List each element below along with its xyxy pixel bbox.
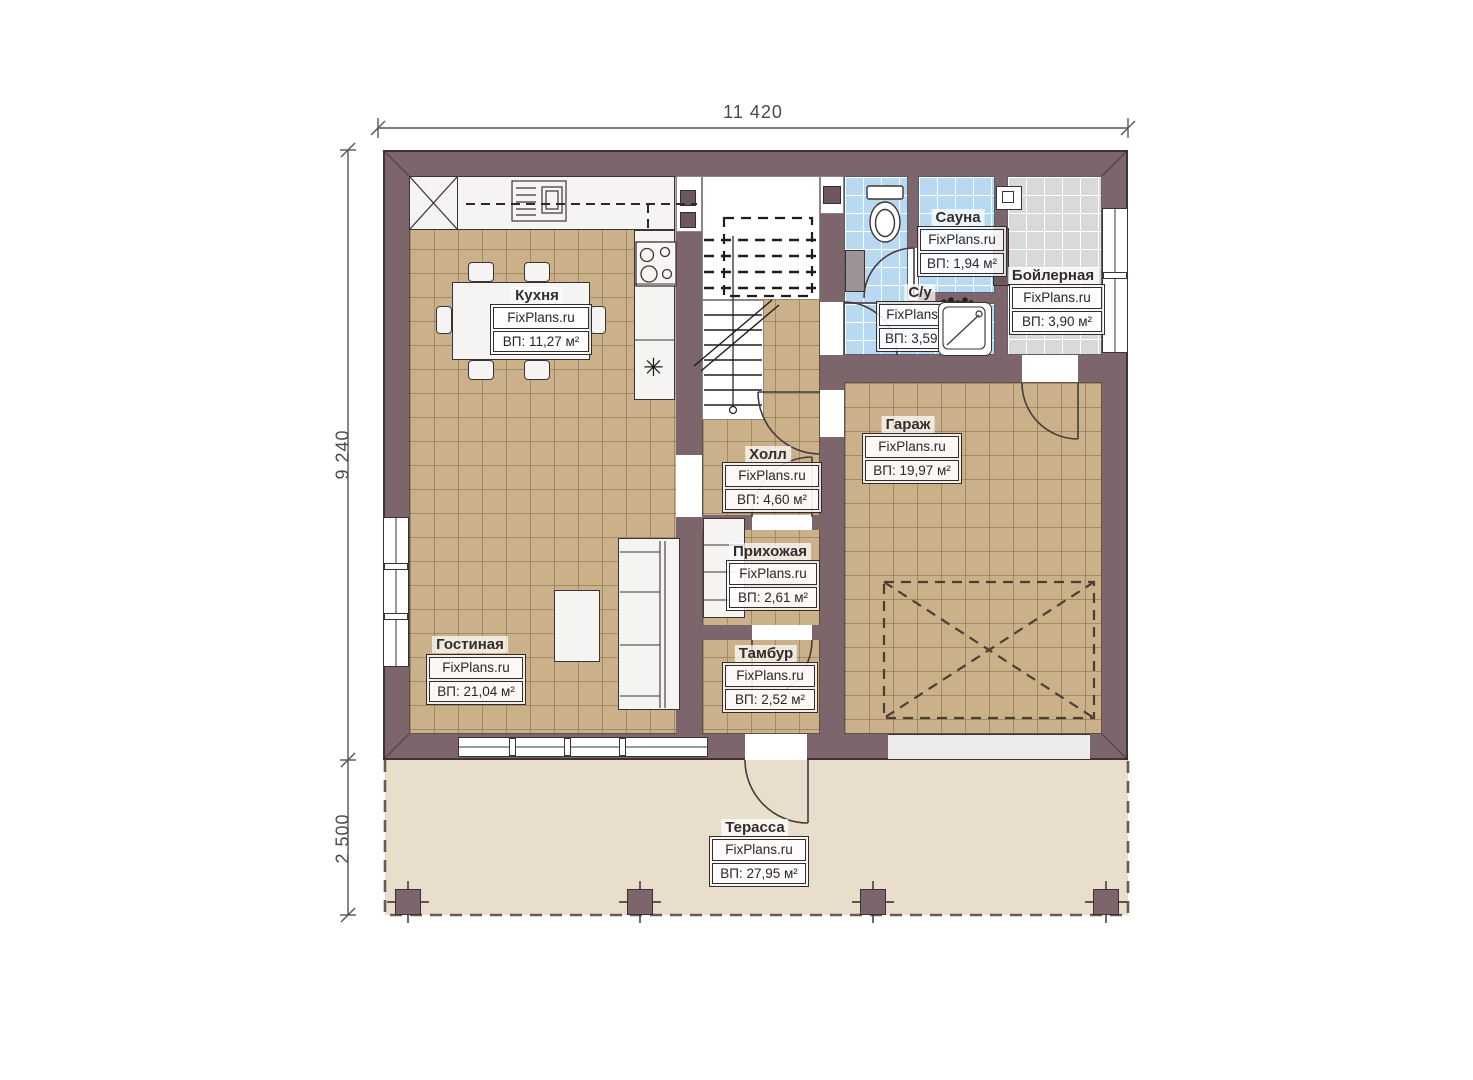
room-area: ВП: 11,27 м² — [493, 331, 589, 353]
opening-garage-door — [820, 390, 844, 437]
dining-chair — [524, 360, 550, 380]
dining-chair — [436, 306, 452, 334]
dimension-total-width: 11 420 — [703, 102, 803, 123]
room-info-box: FixPlans.ru ВП: 1,94 м² — [917, 226, 1007, 277]
room-area: ВП: 4,60 м² — [725, 489, 819, 511]
wc-cabinet — [845, 250, 865, 292]
room-area: ВП: 19,97 м² — [865, 460, 959, 482]
terrace-post — [1093, 889, 1119, 915]
opening-tambour-exterior — [745, 734, 807, 760]
room-name: Бойлерная — [1008, 267, 1098, 284]
brand-watermark: FixPlans.ru — [729, 563, 817, 585]
window-glass-line — [395, 518, 397, 666]
room-info-box: FixPlans.ru ВП: 4,60 м² — [722, 462, 822, 513]
terrace-post — [627, 889, 653, 915]
shower-tray-lines — [939, 303, 989, 353]
room-info-box: FixPlans.ru ВП: 27,95 м² — [709, 836, 809, 887]
window-mullion — [509, 738, 516, 756]
room-info-box: FixPlans.ru ВП: 2,52 м² — [722, 662, 818, 713]
floor-plan: ✳ — [0, 0, 1473, 1080]
window-boiler-east — [1102, 208, 1128, 353]
dining-chair — [590, 306, 606, 334]
window-mullion — [384, 613, 408, 620]
window-mullion — [619, 738, 626, 756]
brand-watermark: FixPlans.ru — [920, 229, 1004, 251]
window-mullion — [384, 563, 408, 570]
dining-chair — [468, 262, 494, 282]
room-name: Сауна — [931, 209, 984, 226]
garage-gate-opening — [888, 734, 1090, 760]
brand-watermark: FixPlans.ru — [725, 665, 815, 687]
room-info-box: FixPlans.ru ВП: 19,97 м² — [862, 433, 962, 484]
kitchen-vent-box — [409, 176, 458, 230]
dining-chair — [468, 360, 494, 380]
shower-tray — [938, 302, 992, 356]
window-mullion — [564, 738, 571, 756]
chimney-box — [996, 186, 1022, 210]
room-info-box: FixPlans.ru ВП: 21,04 м² — [426, 654, 526, 705]
stairs-upper-area — [702, 176, 820, 300]
vent-duct-icon — [680, 212, 696, 228]
room-name: Прихожая — [729, 543, 811, 560]
brand-watermark: FixPlans.ru — [1012, 287, 1102, 309]
window-mullion — [1103, 272, 1127, 279]
room-area: ВП: 2,52 м² — [725, 689, 815, 711]
window-living-west — [383, 517, 409, 667]
room-info-box: FixPlans.ru ВП: 11,27 м² — [490, 304, 592, 355]
room-name: Гараж — [882, 416, 935, 433]
room-area: ВП: 1,94 м² — [920, 253, 1004, 275]
vent-duct-icon — [823, 186, 841, 204]
stairs-lower-area — [702, 300, 764, 420]
room-area: ВП: 21,04 м² — [429, 681, 523, 703]
terrace-post — [860, 889, 886, 915]
brand-watermark: FixPlans.ru — [725, 465, 819, 487]
room-name: Тамбур — [735, 645, 797, 662]
brand-watermark: FixPlans.ru — [712, 839, 806, 861]
room-name: Холл — [745, 446, 791, 463]
coffee-table — [554, 590, 600, 662]
vent-duct-icon — [680, 190, 696, 206]
window-glass-line — [1114, 209, 1116, 352]
brand-watermark: FixPlans.ru — [493, 307, 589, 329]
brand-watermark: FixPlans.ru — [865, 436, 959, 458]
room-name: Кухня — [511, 287, 563, 304]
dimension-terrace-depth: 2 500 — [333, 799, 354, 879]
brand-watermark: FixPlans.ru — [429, 657, 523, 679]
opening-entry-tambour — [752, 625, 812, 640]
opening-living-hall — [676, 455, 702, 517]
window-glass-line — [459, 746, 707, 748]
room-name: Гостиная — [432, 636, 508, 653]
wall-hall-garage — [820, 176, 844, 734]
room-info-box: FixPlans.ru ВП: 2,61 м² — [726, 560, 820, 611]
dimension-main-depth: 9 240 — [333, 415, 354, 495]
window-living-south — [458, 737, 708, 757]
room-area: ВП: 2,61 м² — [729, 587, 817, 609]
sofa — [618, 538, 680, 710]
chimney-flue — [1002, 191, 1014, 203]
room-info-box: FixPlans.ru ВП: 3,90 м² — [1009, 284, 1105, 335]
room-name: С/у — [904, 284, 935, 301]
fridge-icon: ✳ — [643, 356, 664, 381]
dining-chair — [524, 262, 550, 282]
room-name: Терасса — [721, 819, 788, 836]
room-area: ВП: 3,90 м² — [1012, 311, 1102, 333]
room-area: ВП: 27,95 м² — [712, 863, 806, 885]
opening-boiler-door — [1022, 355, 1078, 382]
opening-hall-entry — [752, 515, 812, 530]
terrace-post — [395, 889, 421, 915]
opening-wc-door — [820, 302, 844, 355]
